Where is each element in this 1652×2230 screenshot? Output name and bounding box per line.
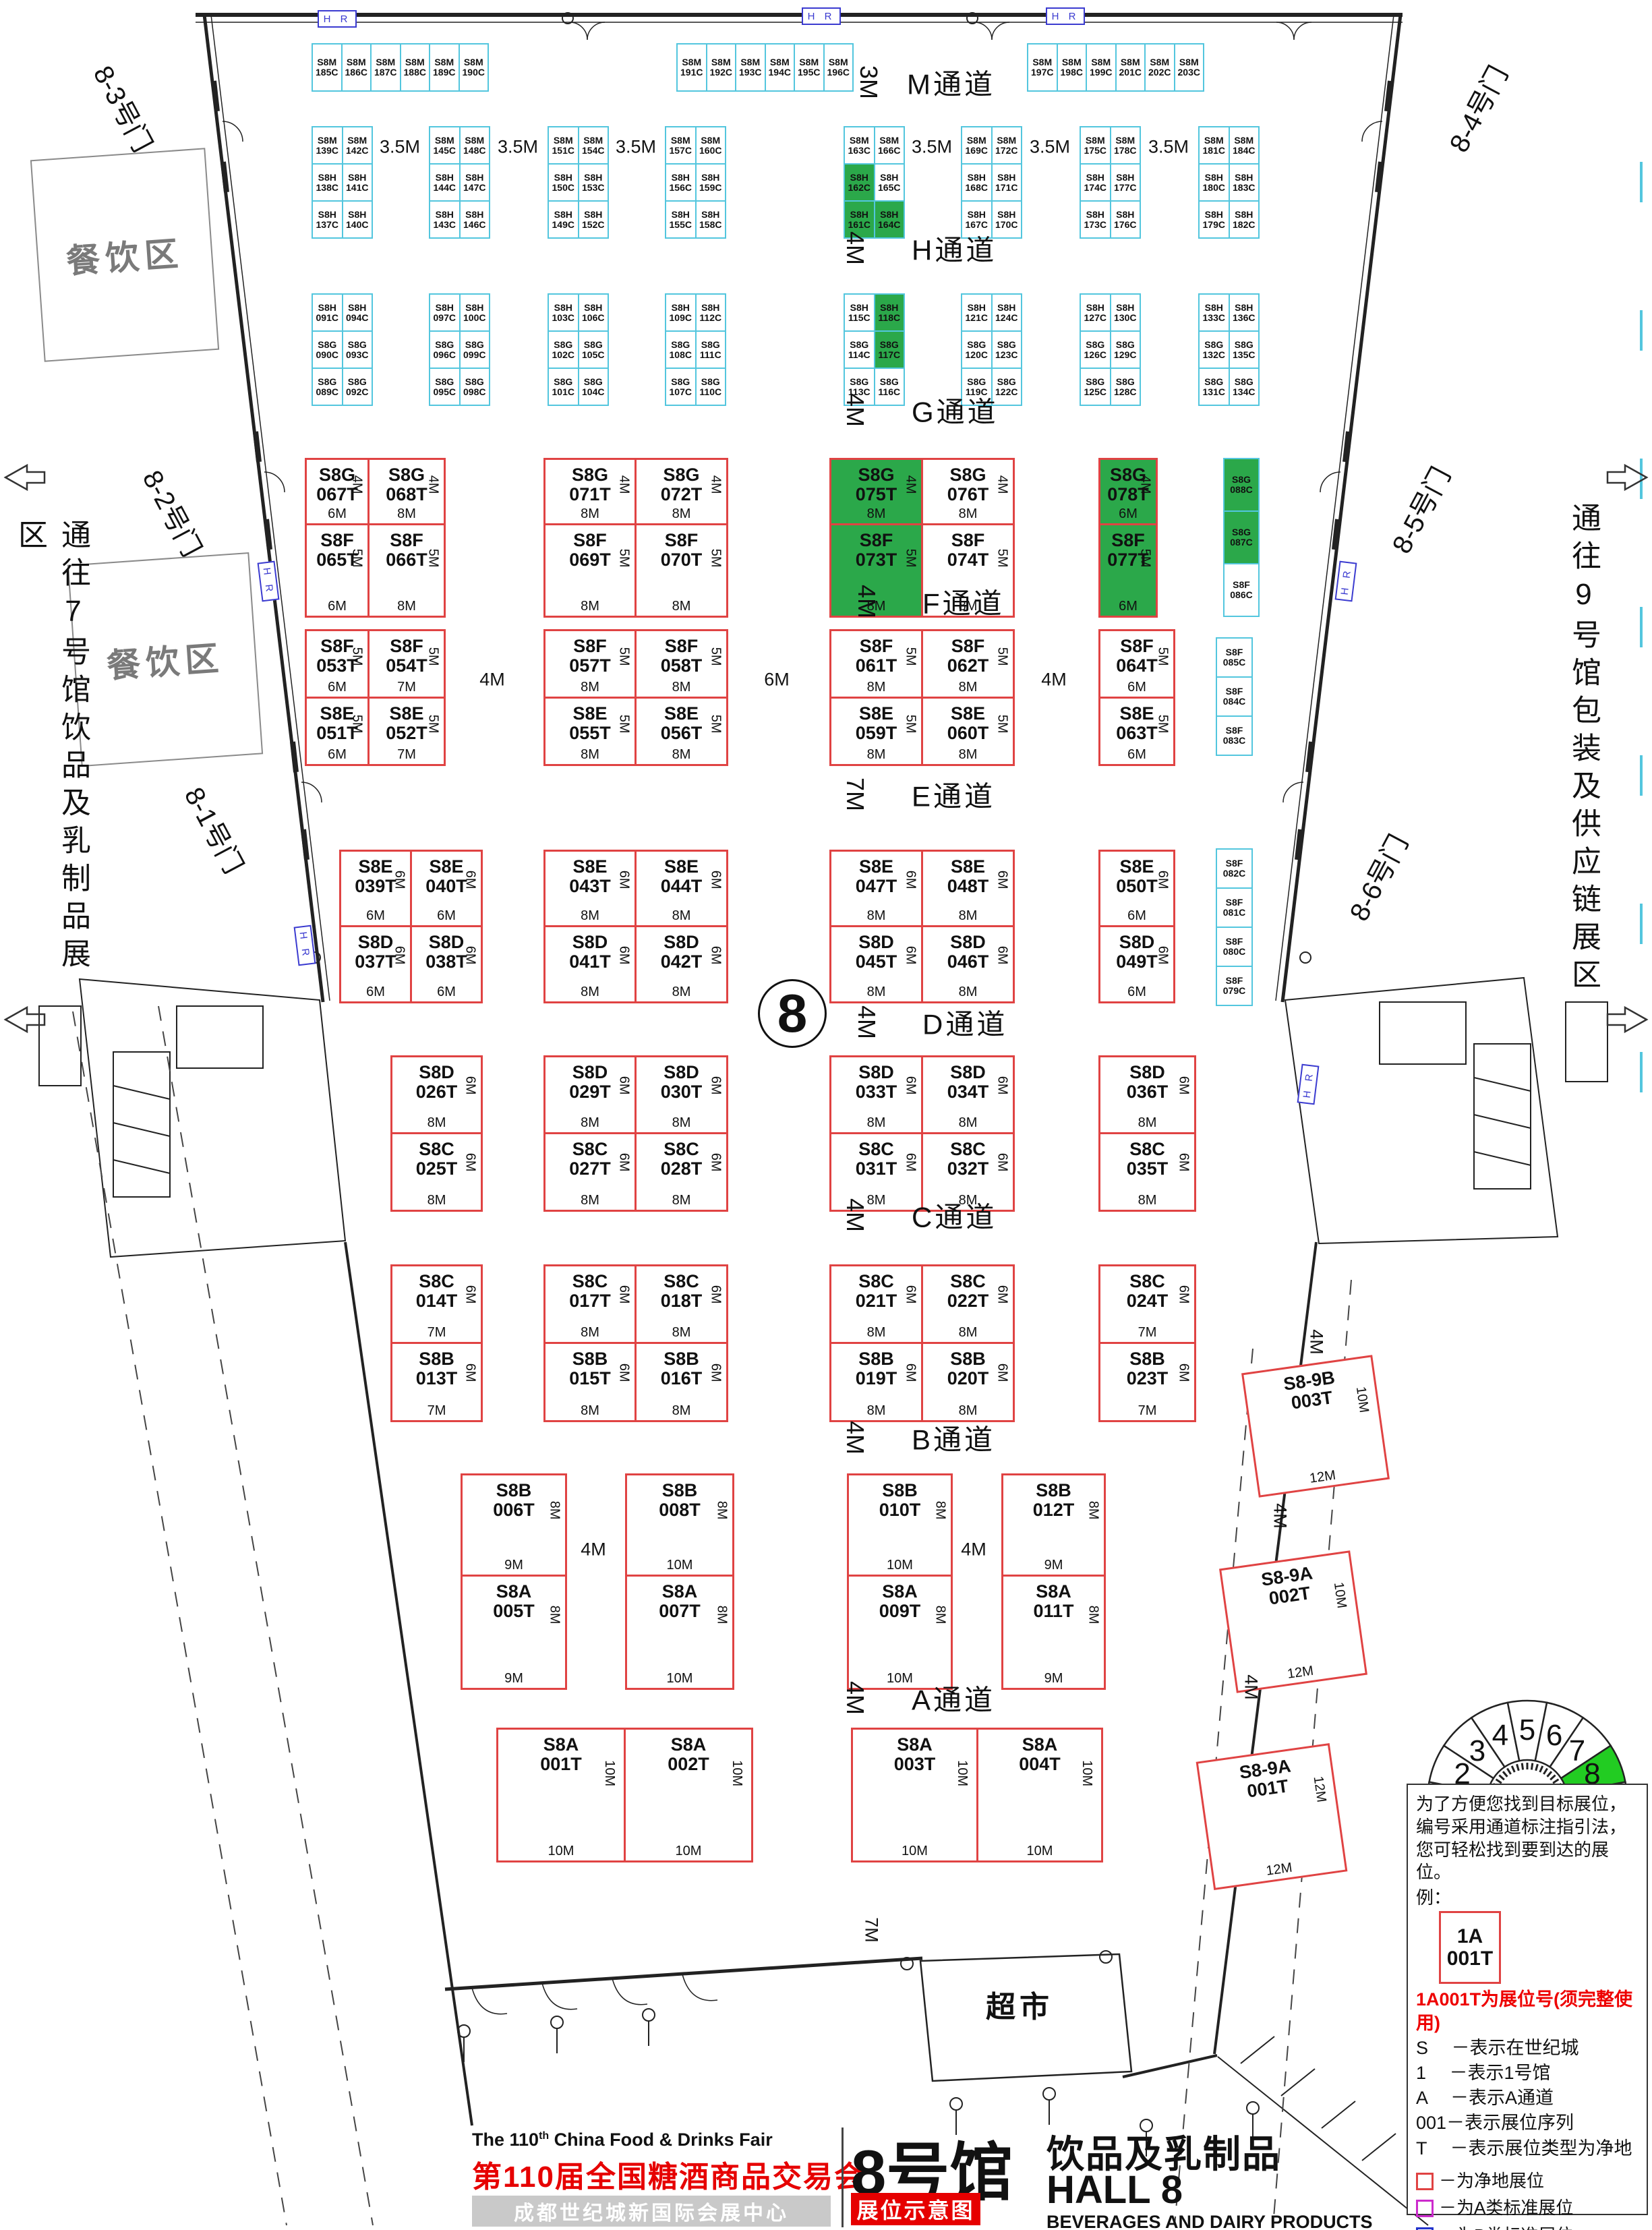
legend-swatch-row: －为净地展位 (1416, 2170, 1640, 2193)
aisle-dimension: 4M (852, 1005, 881, 1039)
dimension-label: 4M (1241, 1674, 1262, 1700)
hall-segment-number: 5 (1519, 1713, 1535, 1747)
fair-title-en: The 110th China Food & Drinks Fair (472, 2130, 773, 2150)
dimension-label: 4M (479, 670, 505, 691)
gate-label: 8-5号门 (1380, 459, 1458, 560)
venue-name: 成都世纪城新国际会展中心 (472, 2196, 831, 2227)
dimension-label: 4M (961, 1539, 986, 1560)
hall-segment-number: 7 (1569, 1734, 1585, 1767)
fair-title-cn: 第110届全国糖酒商品交易会 (472, 2152, 865, 2196)
aisle-label: A通道 (912, 1678, 995, 1719)
corridor-text-right: 通往9号馆包装及供应链展区 (1562, 502, 1605, 1001)
legend-swatches: －为净地展位－为A类标准展位－为B类标准展位－为C类标准展位－为D类标准展位 (1416, 2170, 1640, 2230)
aisle-label: E通道 (912, 774, 995, 815)
aisle-label: G通道 (912, 390, 999, 431)
booth-type-swatch (1416, 2173, 1434, 2190)
gate-label: 8-1号门 (177, 780, 255, 880)
legend-booth-id-note: 1A001T为展位号(须完整使用) (1416, 1988, 1640, 2035)
aisle-label: C通道 (912, 1195, 997, 1236)
dimension-label: 3.5M (380, 137, 420, 158)
hydrant-mark-icon: H R (1046, 7, 1085, 25)
example-booth-box: 1A 001T (1439, 1911, 1501, 1984)
dining-label: 餐饮区 (105, 631, 226, 688)
legend-code-line: A －表示A通道 (1416, 2086, 1640, 2110)
dimension-label: 3.5M (1030, 137, 1070, 158)
corridor-text-left: 通往7号馆饮品及乳制品展区 (8, 519, 94, 1005)
dimension-label: 3.5M (912, 137, 952, 158)
hydrant-mark-icon: H R (294, 925, 316, 966)
gate-label: 8-4号门 (1438, 58, 1516, 158)
aisle-label: H通道 (912, 228, 997, 269)
aisle-dimension: 4M (841, 393, 869, 427)
legend-code-line: T －表示展位类型为净地 (1416, 2137, 1640, 2161)
dining-label: 餐饮区 (65, 227, 185, 283)
hydrant-mark-icon: H R (802, 7, 841, 25)
gate-label: 8-6号门 (1338, 827, 1416, 927)
legend-box: 为了方便您找到目标展位，编号采用通道标注指引法，您可轻松找到要到达的展位。 例：… (1407, 1784, 1648, 2215)
hydrant-mark-icon: H R (1297, 1064, 1320, 1105)
aisle-dimension: 7M (841, 777, 869, 811)
aisle-label: M通道 (907, 62, 995, 103)
example-booth-line1: 1A (1457, 1925, 1483, 1947)
example-booth-line2: 001T (1447, 1947, 1493, 1970)
dimension-label: 6M (764, 670, 790, 691)
product-title-en: BEVERAGES AND DAIRY PRODUCTS (1046, 2212, 1373, 2230)
hydrant-mark-icon: H R (1335, 561, 1357, 602)
hall-segment-number: 4 (1492, 1719, 1508, 1752)
hydrant-mark-icon: H R (318, 10, 357, 28)
legend-code-line: 001－表示展位序列 (1416, 2111, 1640, 2135)
legend-code-line: S －表示在世纪城 (1416, 2036, 1640, 2060)
aisle-dimension: 3M (854, 65, 883, 99)
dining-area-1: 餐饮区 (30, 148, 219, 361)
dimension-label: 4M (1306, 1329, 1327, 1355)
hall-number-circle: 8 (758, 979, 827, 1048)
title-divider (842, 2128, 844, 2227)
legend-code-line: 1 －表示1号馆 (1416, 2061, 1640, 2085)
hydrant-mark-icon: H R (258, 561, 280, 602)
dimension-label: 4M (581, 1539, 606, 1560)
hall-title-en: HALL 8 (1046, 2167, 1183, 2212)
aisle-dimension: 4M (841, 1681, 869, 1715)
dimension-label: 4M (1041, 670, 1067, 691)
hall-segment-number: 3 (1469, 1734, 1485, 1767)
gate-label: 8-2号门 (135, 463, 213, 563)
dimension-label: 7M (861, 1917, 882, 1943)
hall-number: 8 (777, 982, 808, 1045)
gate-label: 8-3号门 (86, 58, 164, 158)
dimension-label: 4M (1270, 1503, 1291, 1529)
dimension-label: 3.5M (616, 137, 656, 158)
aisle-dimension: 4M (841, 1198, 869, 1232)
example-label: 例： (1416, 1887, 1451, 1910)
dimension-label: 3.5M (1148, 137, 1189, 158)
floorplan-hall8: S8M185CS8M186CS8M187CS8M188CS8M189CS8M19… (0, 0, 1652, 2230)
supermarket-label: 超市 (986, 1983, 1053, 2026)
legend-code-lines: S －表示在世纪城1 －表示1号馆A －表示A通道001－表示展位序列T －表示… (1416, 2036, 1640, 2160)
aisle-dimension: 4M (841, 1421, 869, 1455)
hall-segment-number: 6 (1546, 1719, 1562, 1752)
schematic-badge: 展位示意图 (851, 2193, 980, 2225)
aisle-label: F通道 (922, 581, 1005, 622)
booth-type-swatch (1416, 2200, 1434, 2217)
dimension-label: 3.5M (498, 137, 538, 158)
aisle-label: D通道 (922, 1002, 1007, 1043)
legend-paragraph: 为了方便您找到目标展位，编号采用通道标注指引法，您可轻松找到要到达的展位。 (1416, 1793, 1640, 1884)
aisle-label: B通道 (912, 1417, 995, 1459)
label-layer: 3MM通道4MH通道4MG通道4MF通道7ME通道4MD通道4MC通道4MB通道… (0, 0, 1652, 2230)
legend-swatch-row: －为B类标准展位 (1416, 2225, 1640, 2230)
aisle-dimension: 4M (841, 231, 869, 265)
aisle-dimension: 4M (852, 585, 881, 618)
booth-type-swatch (1416, 2227, 1434, 2230)
dining-area-2: 餐饮区 (67, 552, 263, 767)
legend-swatch-row: －为A类标准展位 (1416, 2197, 1640, 2220)
